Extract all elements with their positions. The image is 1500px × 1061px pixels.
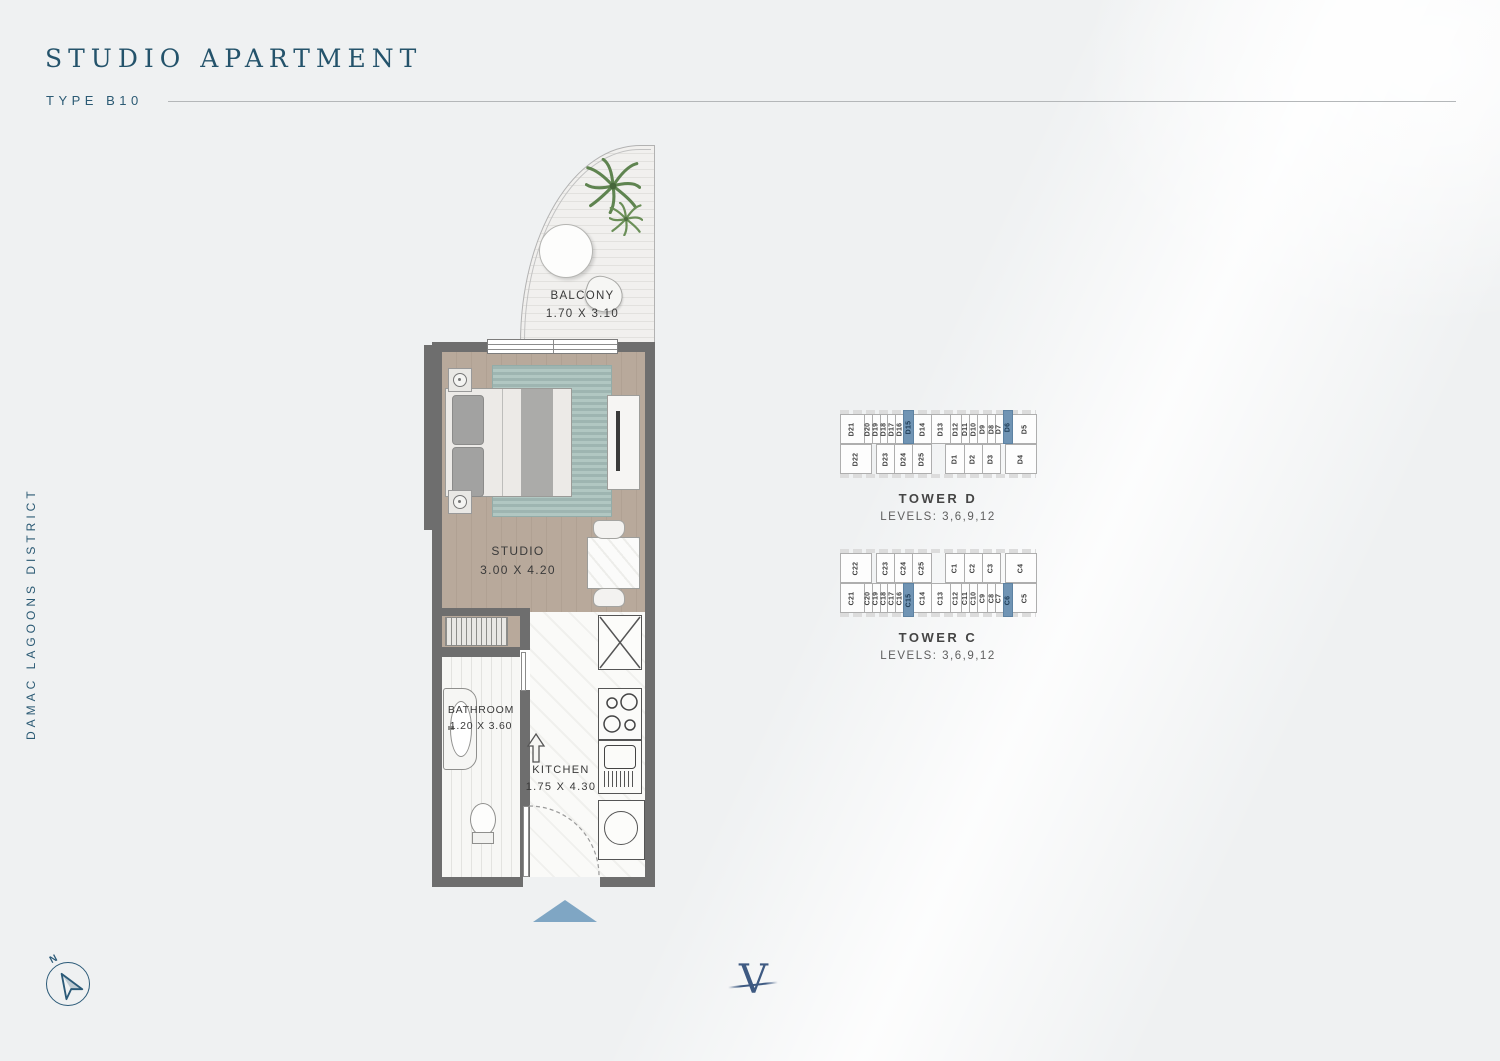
balcony-label: BALCONY1.70 X 3.10 bbox=[520, 288, 645, 324]
logo-letter: V bbox=[739, 958, 768, 1002]
wall-bath-bottom bbox=[432, 647, 520, 657]
tower-unit-D13: D13 bbox=[931, 414, 950, 444]
tower-unit-D23: D23 bbox=[876, 444, 895, 474]
tower-unit-D21: D21 bbox=[840, 414, 865, 444]
tower-unit-C13: C13 bbox=[931, 583, 950, 613]
bathroom-door bbox=[521, 652, 526, 691]
tower-unit-D15: D15 bbox=[903, 410, 914, 444]
entry-door bbox=[523, 806, 529, 877]
nightstand bbox=[448, 368, 472, 392]
wardrobe bbox=[445, 617, 508, 646]
tower-c-top-row: C22C23C24C25C1C2C3C4 bbox=[840, 553, 1036, 583]
tower-d-name: TOWER D bbox=[840, 491, 1036, 506]
entrance-arrow bbox=[533, 900, 597, 922]
floor-plan: BALCONY1.70 X 3.10 STUDIO3.00 X 4.20 BAT… bbox=[424, 140, 670, 940]
toilet-tank bbox=[472, 832, 494, 844]
tower-unit-C15: C15 bbox=[903, 583, 914, 617]
tower-d-bottom-row: D22D23D24D25D1D2D3D4 bbox=[840, 444, 1036, 474]
tower-unit-C21: C21 bbox=[840, 583, 865, 613]
wall-bottom-right bbox=[600, 877, 655, 887]
tower-unit-D2: D2 bbox=[964, 444, 983, 474]
brand-logo: V bbox=[731, 958, 775, 1012]
tower-unit-D6: D6 bbox=[1003, 410, 1014, 444]
lamp-icon bbox=[453, 495, 467, 509]
district-label: DAMAC LAGOONS DISTRICT bbox=[24, 430, 38, 740]
tower-gap bbox=[931, 444, 947, 474]
compass: N bbox=[42, 956, 96, 1010]
tower-unit-C3: C3 bbox=[982, 553, 1001, 583]
palm-plant-icon bbox=[609, 202, 643, 236]
tower-unit-D14: D14 bbox=[913, 414, 932, 444]
tower-unit-D22: D22 bbox=[840, 444, 872, 474]
tower-c-name: TOWER C bbox=[840, 630, 1036, 645]
tower-unit-D1: D1 bbox=[945, 444, 964, 474]
tower-unit-C14: C14 bbox=[913, 583, 932, 613]
tower-unit-C6: C6 bbox=[1003, 583, 1014, 617]
wall-right bbox=[645, 342, 655, 887]
tower-d-levels: LEVELS: 3,6,9,12 bbox=[840, 511, 1036, 523]
tv-icon bbox=[616, 411, 620, 471]
tower-unit-C1: C1 bbox=[945, 553, 964, 583]
tower-gap bbox=[931, 553, 947, 583]
tower-c-levels: LEVELS: 3,6,9,12 bbox=[840, 650, 1036, 662]
tower-unit-C22: C22 bbox=[840, 553, 872, 583]
tower-unit-D24: D24 bbox=[894, 444, 913, 474]
bed bbox=[445, 388, 572, 497]
dining-chair bbox=[593, 588, 625, 607]
tower-c-bottom-row: C21C20C19C18C17C16C15C14C13C12C11C10C9C8… bbox=[840, 583, 1036, 613]
tower-unit-C5: C5 bbox=[1012, 583, 1037, 613]
tower-unit-C24: C24 bbox=[894, 553, 913, 583]
kitchen-label: KITCHEN1.75 X 4.30 bbox=[522, 762, 600, 796]
tower-unit-D5: D5 bbox=[1012, 414, 1037, 444]
tower-unit-D3: D3 bbox=[982, 444, 1001, 474]
page-title: STUDIO APARTMENT bbox=[45, 44, 422, 73]
kitchen-appliance bbox=[598, 615, 642, 670]
blanket bbox=[521, 389, 553, 496]
tower-unit-C23: C23 bbox=[876, 553, 895, 583]
washing-machine bbox=[598, 800, 645, 860]
wall-bottom-left bbox=[432, 877, 523, 887]
tower-d-top-row: D21D20D19D18D17D16D15D14D13D12D11D10D9D8… bbox=[840, 414, 1036, 444]
wall-bath-top bbox=[432, 608, 530, 616]
balcony-window bbox=[487, 339, 618, 354]
tower-c-diagram: C22C23C24C25C1C2C3C4 C21C20C19C18C17C16C… bbox=[840, 549, 1036, 662]
dining-table bbox=[587, 537, 640, 589]
tower-unit-D25: D25 bbox=[912, 444, 931, 474]
bathroom-label: BATHROOM1.20 X 3.60 bbox=[441, 702, 521, 735]
nightstand bbox=[448, 490, 472, 514]
pillow bbox=[452, 395, 484, 445]
tower-unit-C2: C2 bbox=[964, 553, 983, 583]
studio-label: STUDIO3.00 X 4.20 bbox=[458, 542, 578, 579]
type-label: TYPE B10 bbox=[46, 93, 143, 108]
tower-unit-D4: D4 bbox=[1005, 444, 1037, 474]
tower-unit-C4: C4 bbox=[1005, 553, 1037, 583]
tower-balcony-bumps bbox=[840, 474, 1036, 478]
balcony-table bbox=[539, 224, 593, 278]
lamp-icon bbox=[453, 373, 467, 387]
dining-chair bbox=[593, 520, 625, 539]
wall-left-pilaster bbox=[424, 345, 432, 530]
kitchen-sink bbox=[598, 740, 642, 794]
header-rule bbox=[168, 101, 1456, 102]
direction-arrow-icon bbox=[526, 732, 546, 764]
tower-unit-C25: C25 bbox=[912, 553, 931, 583]
door-swing-arc bbox=[525, 802, 603, 880]
tv-console bbox=[607, 395, 640, 490]
cooktop-hob bbox=[598, 688, 642, 740]
tower-d-diagram: D21D20D19D18D17D16D15D14D13D12D11D10D9D8… bbox=[840, 410, 1036, 523]
